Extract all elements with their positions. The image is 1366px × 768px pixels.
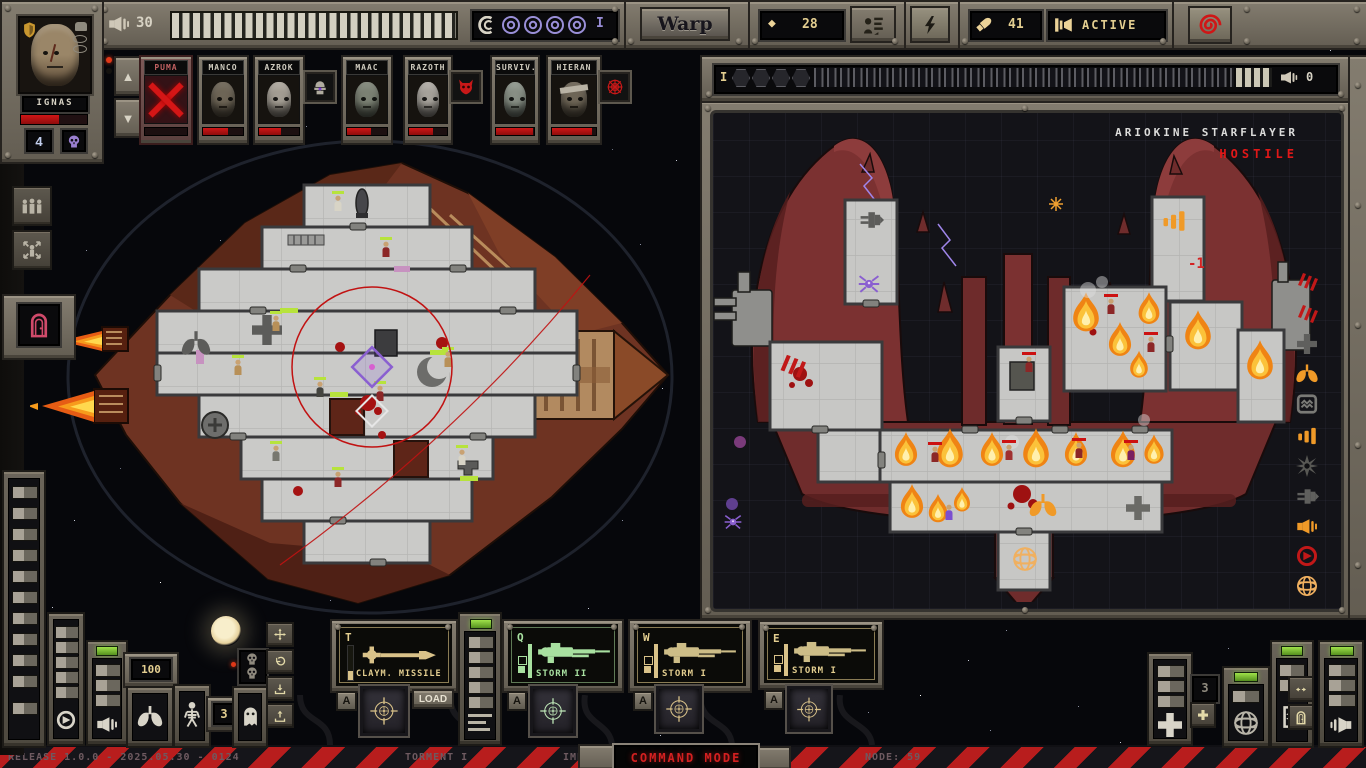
claw-marks-icon xyxy=(1294,300,1320,326)
autofire-label: A xyxy=(639,695,647,707)
moon xyxy=(211,616,241,646)
ammo-cell xyxy=(644,656,653,665)
charge-bar xyxy=(654,644,658,678)
warp-button[interactable]: Warp xyxy=(640,7,730,41)
warp-button-label: Warp xyxy=(657,13,712,35)
ghost-console xyxy=(232,686,268,748)
oxygen-value: 100 xyxy=(131,663,171,676)
crew-group-icon xyxy=(20,198,44,215)
shield-badge-icon xyxy=(23,22,36,38)
crew-card-azrok[interactable]: AZROK xyxy=(253,55,305,145)
alert-panel: ACTIVE xyxy=(1046,9,1168,42)
eye-icon xyxy=(73,45,87,53)
charge-bar xyxy=(528,644,532,678)
weapon-panel-t: T CLAYM. MISSILE xyxy=(330,619,458,693)
weapon-name: CLAYM. MISSILE xyxy=(356,669,442,679)
crew-name: MAAC xyxy=(346,60,388,75)
gun-art xyxy=(792,639,868,665)
left-ladder-tower xyxy=(2,470,46,748)
speaker-horn-icon xyxy=(108,15,130,33)
alert-led xyxy=(106,57,112,63)
medical-cross-icon xyxy=(1157,712,1183,738)
crew-orders-icon xyxy=(862,15,884,35)
hazard-tick xyxy=(468,714,492,717)
crew-card-hieran[interactable]: HIERAN V xyxy=(546,55,602,145)
skeleton-icon xyxy=(181,698,203,732)
load-button[interactable]: LOAD xyxy=(412,689,454,709)
scrap-value: 28 xyxy=(802,17,818,32)
autofire-label: A xyxy=(343,695,351,707)
shield-generator-icon xyxy=(1294,391,1320,417)
thruster-console xyxy=(86,640,128,746)
swap-arrows-icon xyxy=(1296,684,1306,695)
crew-card-maac[interactable]: MAAC xyxy=(341,55,393,145)
idle-led xyxy=(106,68,112,74)
sphere-console xyxy=(1222,666,1270,748)
shield-sphere-icon xyxy=(1232,708,1260,738)
crew-name: AZROK xyxy=(258,60,300,75)
chaos-spiral-icon xyxy=(1198,13,1222,37)
helmet-icon xyxy=(75,22,87,31)
weapon-t-autofire-button[interactable]: A xyxy=(336,691,357,711)
crew-orders-button[interactable] xyxy=(850,6,896,43)
crew-spread-icon xyxy=(21,239,43,261)
weapon-q-autofire-button[interactable]: A xyxy=(507,691,527,711)
hull-value: 30 xyxy=(136,15,153,31)
top-bar-plate-warp: Warp xyxy=(624,0,750,50)
horn-console xyxy=(1318,640,1364,748)
diamond-icon: ◆ xyxy=(768,16,776,31)
weapon-panel-q: Q STORM II xyxy=(502,619,624,693)
hazard-tick xyxy=(468,721,486,724)
enemy-ship-name: ARIOKINE STARFLAYER xyxy=(1000,126,1298,139)
crew-card-manco[interactable]: MANCO xyxy=(197,55,249,145)
crew-name: MANCO xyxy=(202,60,244,75)
ammo-cell xyxy=(518,666,525,673)
move-crosshair-button[interactable] xyxy=(266,622,294,647)
move-crosshair-icon xyxy=(274,626,286,643)
target-reticle-icon xyxy=(369,691,399,731)
lift-icon xyxy=(274,708,286,724)
target-reticle-icon xyxy=(796,691,822,728)
eye-icon xyxy=(73,35,87,43)
meter-led xyxy=(231,662,236,667)
hazard-tick xyxy=(468,728,490,731)
alert-status: ACTIVE xyxy=(1082,18,1137,32)
ammo-panel: 41 xyxy=(968,9,1044,42)
crew-name: SURVIV. xyxy=(495,60,535,75)
retreat-arrow-icon xyxy=(1294,543,1320,569)
top-bar-plate-ammo: 41 ACTIVE xyxy=(958,0,1174,50)
ammo-cell xyxy=(644,666,651,673)
door-small-icon xyxy=(1296,709,1306,726)
load-label: LOAD xyxy=(414,694,452,705)
cage-sphere-icon xyxy=(1294,573,1320,599)
weapon-e-autofire-button[interactable]: A xyxy=(764,690,784,710)
target-reticle-icon xyxy=(665,690,693,728)
scrap-panel: ◆ 28 xyxy=(758,9,846,42)
crew-card-puma[interactable]: PUMA xyxy=(139,55,193,145)
weapon-panel-w: W STORM I xyxy=(628,619,752,693)
enemy-bar-value: 0 xyxy=(1306,70,1313,84)
missile-art xyxy=(360,642,442,669)
door-control-panel xyxy=(2,294,76,360)
daemon-icon xyxy=(451,72,481,102)
medbay-cross-icon xyxy=(1294,331,1320,357)
autofire-label: A xyxy=(770,694,778,706)
skull-button[interactable] xyxy=(60,128,88,154)
weapon-w-autofire-button[interactable]: A xyxy=(633,691,653,711)
order-buttons xyxy=(266,622,296,730)
mode-label: COMMAND MODE xyxy=(631,751,742,765)
weapon-name: STORM I xyxy=(792,666,837,676)
enemy-hull-bar-frame: I 0 xyxy=(700,55,1352,103)
ammo-cell xyxy=(774,665,781,672)
warp-charge-panel: I xyxy=(470,9,620,42)
crew-name: HIERAN V xyxy=(551,60,597,75)
assault-value: 3 xyxy=(1192,681,1218,695)
lightning-icon xyxy=(923,16,937,34)
drop-button[interactable] xyxy=(266,676,294,701)
oxygen-tower xyxy=(126,686,174,748)
ordnance-gauge xyxy=(458,612,502,746)
player-ship-view[interactable] xyxy=(30,135,690,620)
weapon-hotkey: E xyxy=(773,632,780,645)
charge-bar xyxy=(784,644,788,676)
assault-display: 3 xyxy=(1190,674,1220,704)
signal-bars-icon xyxy=(1294,423,1320,449)
weapon-t-target-button[interactable] xyxy=(360,686,408,736)
weapon-hotkey: T xyxy=(345,631,352,644)
thruster-icon xyxy=(95,712,119,736)
enemy-shield-hexes xyxy=(732,69,812,91)
top-bar-plate-chaos xyxy=(1172,0,1366,50)
ammo-value: 41 xyxy=(1008,17,1024,32)
weapon-hotkey: W xyxy=(643,631,650,644)
sparkle xyxy=(1049,197,1063,211)
drop-icon xyxy=(274,681,286,697)
captain-panel: IGNAS 4 xyxy=(0,0,104,164)
crew-card-razoth[interactable]: RAZOTH xyxy=(403,55,453,145)
claw-marks-icon xyxy=(1294,268,1320,294)
skull-icon xyxy=(68,133,80,150)
captain-portrait[interactable] xyxy=(18,16,92,94)
gun-art xyxy=(536,640,612,666)
lift-button[interactable] xyxy=(266,703,294,728)
mode-plate-left xyxy=(578,744,616,768)
mode-plate-right xyxy=(755,746,791,768)
swap-sides-button[interactable] xyxy=(1288,676,1314,702)
weapon-panel-e: E STORM I xyxy=(758,620,884,690)
captain-name: IGNAS xyxy=(22,98,88,108)
enemy-segment-bar-empty xyxy=(814,68,1234,87)
small-door-button[interactable] xyxy=(1288,704,1314,730)
enemy-status: HOSTILE xyxy=(1000,147,1298,161)
crew-scroll-down-button[interactable]: ▼ xyxy=(114,98,142,138)
horn-icon xyxy=(1328,714,1354,736)
weapon-name: STORM II xyxy=(536,669,587,679)
power-button[interactable] xyxy=(910,6,950,43)
warp-tick: I xyxy=(596,16,604,31)
enemy-segment-bar-filled xyxy=(1236,68,1272,87)
autofire-label: A xyxy=(513,695,521,707)
warp-charge-circles xyxy=(500,14,588,36)
release-text: RELEASE 1.0.0 - 2025.05.30 - 0124 xyxy=(8,752,240,763)
ammo-cell xyxy=(774,655,783,664)
crew-scroll-up-button[interactable]: ▲ xyxy=(114,56,142,96)
add-plus-icon xyxy=(1198,707,1208,723)
enemy-hull-bar: I 0 xyxy=(712,63,1340,96)
rotate-console xyxy=(47,612,85,746)
chaos-button[interactable] xyxy=(1188,6,1232,44)
speaker-horn-icon xyxy=(1280,70,1298,85)
web-icon xyxy=(600,72,630,102)
lungs-icon xyxy=(136,704,164,730)
weapon-w-target-button[interactable] xyxy=(656,686,702,732)
charge-bar xyxy=(347,645,354,681)
oxygen-console-frame: 100 xyxy=(123,652,179,688)
node-text: NODE: 59 xyxy=(865,752,921,763)
engine-icon xyxy=(1294,483,1320,509)
oxygen-display: 100 xyxy=(129,657,173,682)
top-bar-plate-hull: 30 I xyxy=(96,0,626,50)
door-button[interactable] xyxy=(16,302,62,348)
crew-spread-button[interactable] xyxy=(12,230,52,270)
door-icon xyxy=(30,312,48,338)
servitor-icon xyxy=(305,72,335,102)
top-bar-plate-scrap: ◆ 28 xyxy=(748,0,906,50)
weapon-q-target-button[interactable] xyxy=(530,686,576,736)
shell-icon xyxy=(974,14,995,34)
oxygen-lungs-icon xyxy=(1294,361,1320,387)
hull-segment-bar xyxy=(170,11,458,40)
void-creatures xyxy=(725,436,746,528)
target-reticle-icon xyxy=(539,691,567,731)
reserve-count-button[interactable]: 4 xyxy=(24,128,54,154)
horn-icon xyxy=(1294,513,1320,539)
enemy-weapon-debuff: -1 xyxy=(1188,256,1205,272)
medbay-console xyxy=(1147,652,1193,746)
undo-button[interactable] xyxy=(266,649,294,674)
undo-arrow-icon xyxy=(274,653,286,670)
ammo-cell xyxy=(518,656,527,665)
captain-hp-bar xyxy=(20,114,88,125)
game-screen: 30 I Warp ◆ 28 xyxy=(0,0,1366,768)
ghost-icon xyxy=(240,702,260,730)
warp-horn-icon xyxy=(478,16,496,34)
crew-name: PUMA xyxy=(144,60,188,75)
captain-name-plate: IGNAS xyxy=(20,94,90,114)
difficulty-text: TORMENT I xyxy=(405,752,468,763)
siren-icon xyxy=(1054,17,1074,33)
weapon-name: STORM I xyxy=(662,669,707,679)
burst-icon xyxy=(1294,453,1320,479)
command-mode-display: COMMAND MODE xyxy=(612,743,760,768)
rotate-icon xyxy=(54,708,78,732)
weapon-hotkey: Q xyxy=(517,631,524,644)
top-bar-plate-power xyxy=(904,0,960,50)
enemy-bar-tick: I xyxy=(720,70,727,84)
enemy-ship-view[interactable]: -1 xyxy=(712,112,1336,602)
crew-name: RAZOTH xyxy=(408,60,448,75)
add-assault-button[interactable] xyxy=(1190,702,1216,728)
crew-card-surviv[interactable]: SURVIV. xyxy=(490,55,540,145)
gun-art xyxy=(662,640,738,666)
crew-group-button[interactable] xyxy=(12,186,52,226)
weapon-e-target-button[interactable] xyxy=(787,686,831,732)
reserve-count: 4 xyxy=(26,134,52,149)
skull-meter xyxy=(237,648,269,686)
right-edge-strip xyxy=(1348,55,1366,620)
